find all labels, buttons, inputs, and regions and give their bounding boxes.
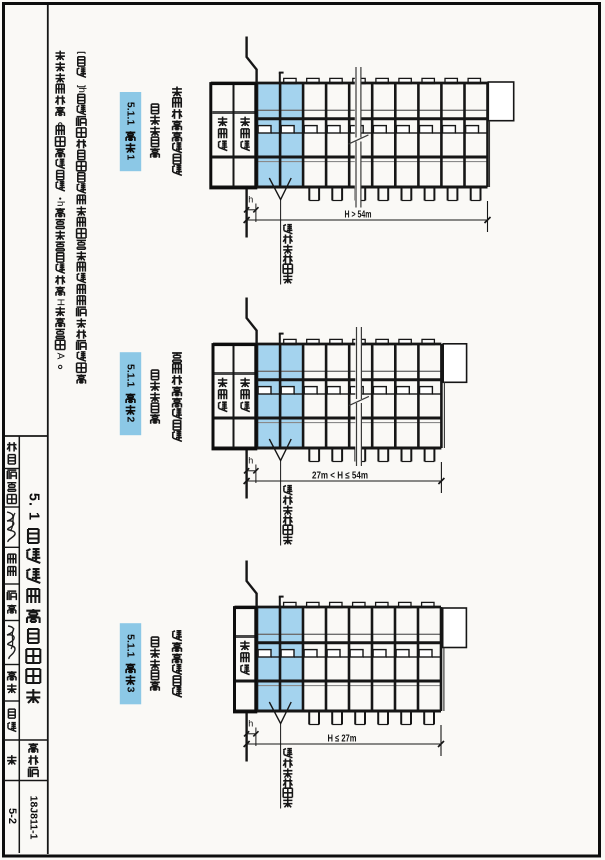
svg-text:H > 54m: H > 54m xyxy=(345,210,372,221)
svg-text:h: h xyxy=(76,87,87,93)
svg-text:5.1.1: 5.1.1 xyxy=(125,102,137,126)
svg-text:H: H xyxy=(55,299,66,306)
svg-text:h: h xyxy=(248,719,253,729)
svg-text:H ≤ 27m: H ≤ 27m xyxy=(328,734,357,745)
svg-text:3: 3 xyxy=(125,687,137,693)
svg-text:h: h xyxy=(55,201,66,207)
svg-text:5. 1: 5. 1 xyxy=(25,493,41,521)
svg-text:h: h xyxy=(248,456,253,466)
svg-text:18J811-1: 18J811-1 xyxy=(28,796,40,840)
svg-text:A: A xyxy=(55,353,66,360)
svg-text:h: h xyxy=(248,195,253,205)
svg-text:2: 2 xyxy=(125,416,137,422)
svg-text:5-2: 5-2 xyxy=(6,808,18,824)
svg-text:5.1.1: 5.1.1 xyxy=(125,364,137,388)
svg-text:5.1.1: 5.1.1 xyxy=(125,634,137,658)
svg-text:1: 1 xyxy=(125,154,137,160)
svg-text:27m < H ≤ 54m: 27m < H ≤ 54m xyxy=(312,471,368,482)
